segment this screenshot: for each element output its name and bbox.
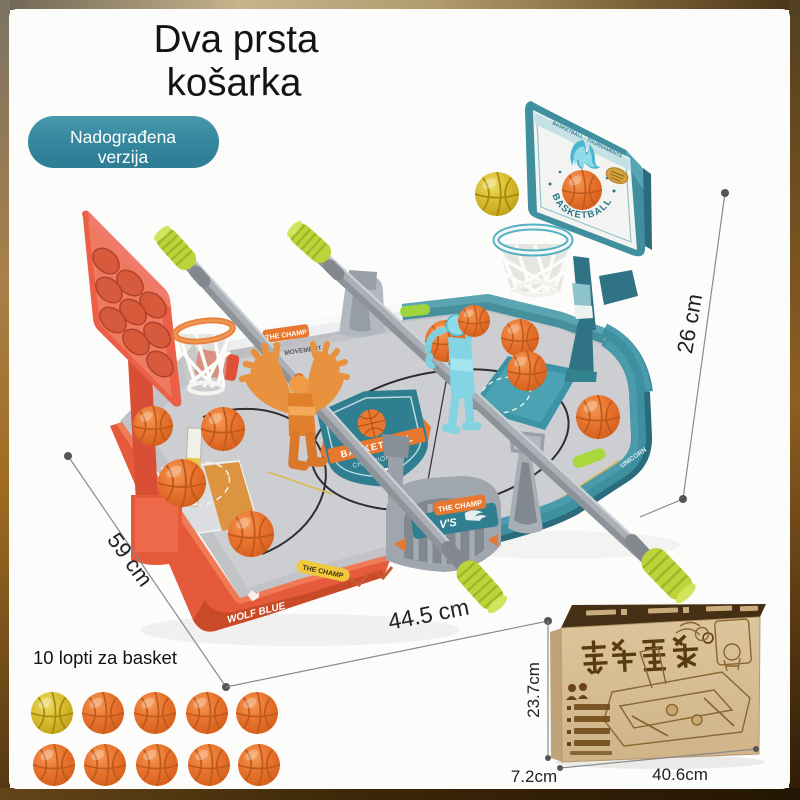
svg-text:košarka: košarka [167,62,302,105]
svg-text:Dva prsta: Dva prsta [154,18,319,61]
svg-text:Nadograđena: Nadograđena [70,127,176,147]
svg-text:7.2cm: 7.2cm [511,767,557,786]
svg-text:10 lopti za basket: 10 lopti za basket [33,647,177,668]
svg-text:23.7cm: 23.7cm [524,662,543,718]
svg-text:40.6cm: 40.6cm [652,765,708,784]
svg-text:verzija: verzija [98,147,149,167]
